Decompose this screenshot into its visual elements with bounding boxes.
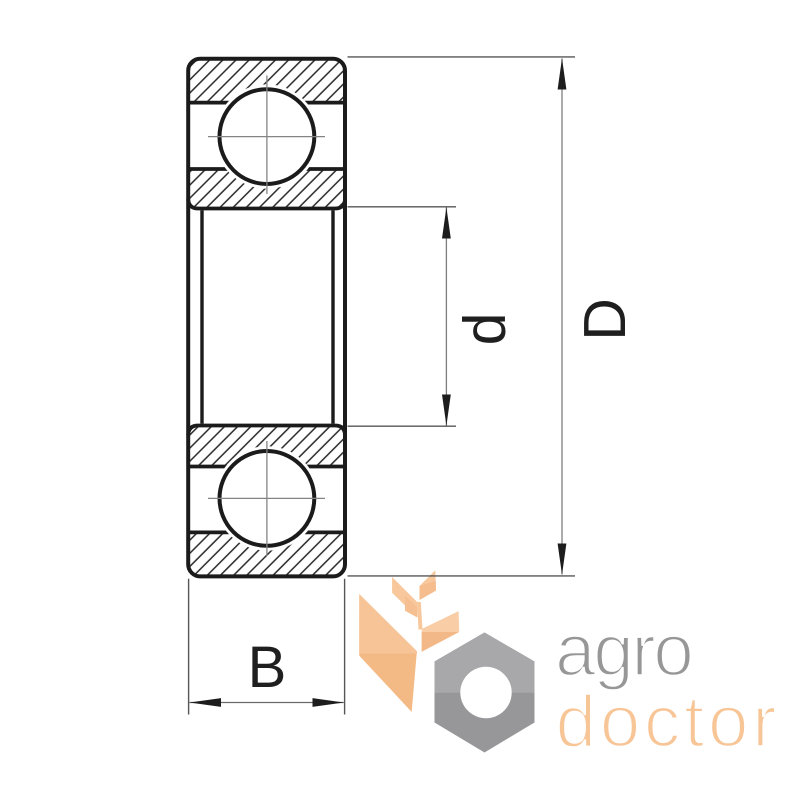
- svg-text:d: d: [452, 313, 518, 346]
- svg-text:doctor: doctor: [556, 682, 781, 763]
- svg-text:D: D: [572, 298, 638, 341]
- svg-text:agro: agro: [555, 611, 692, 692]
- svg-text:B: B: [248, 635, 287, 700]
